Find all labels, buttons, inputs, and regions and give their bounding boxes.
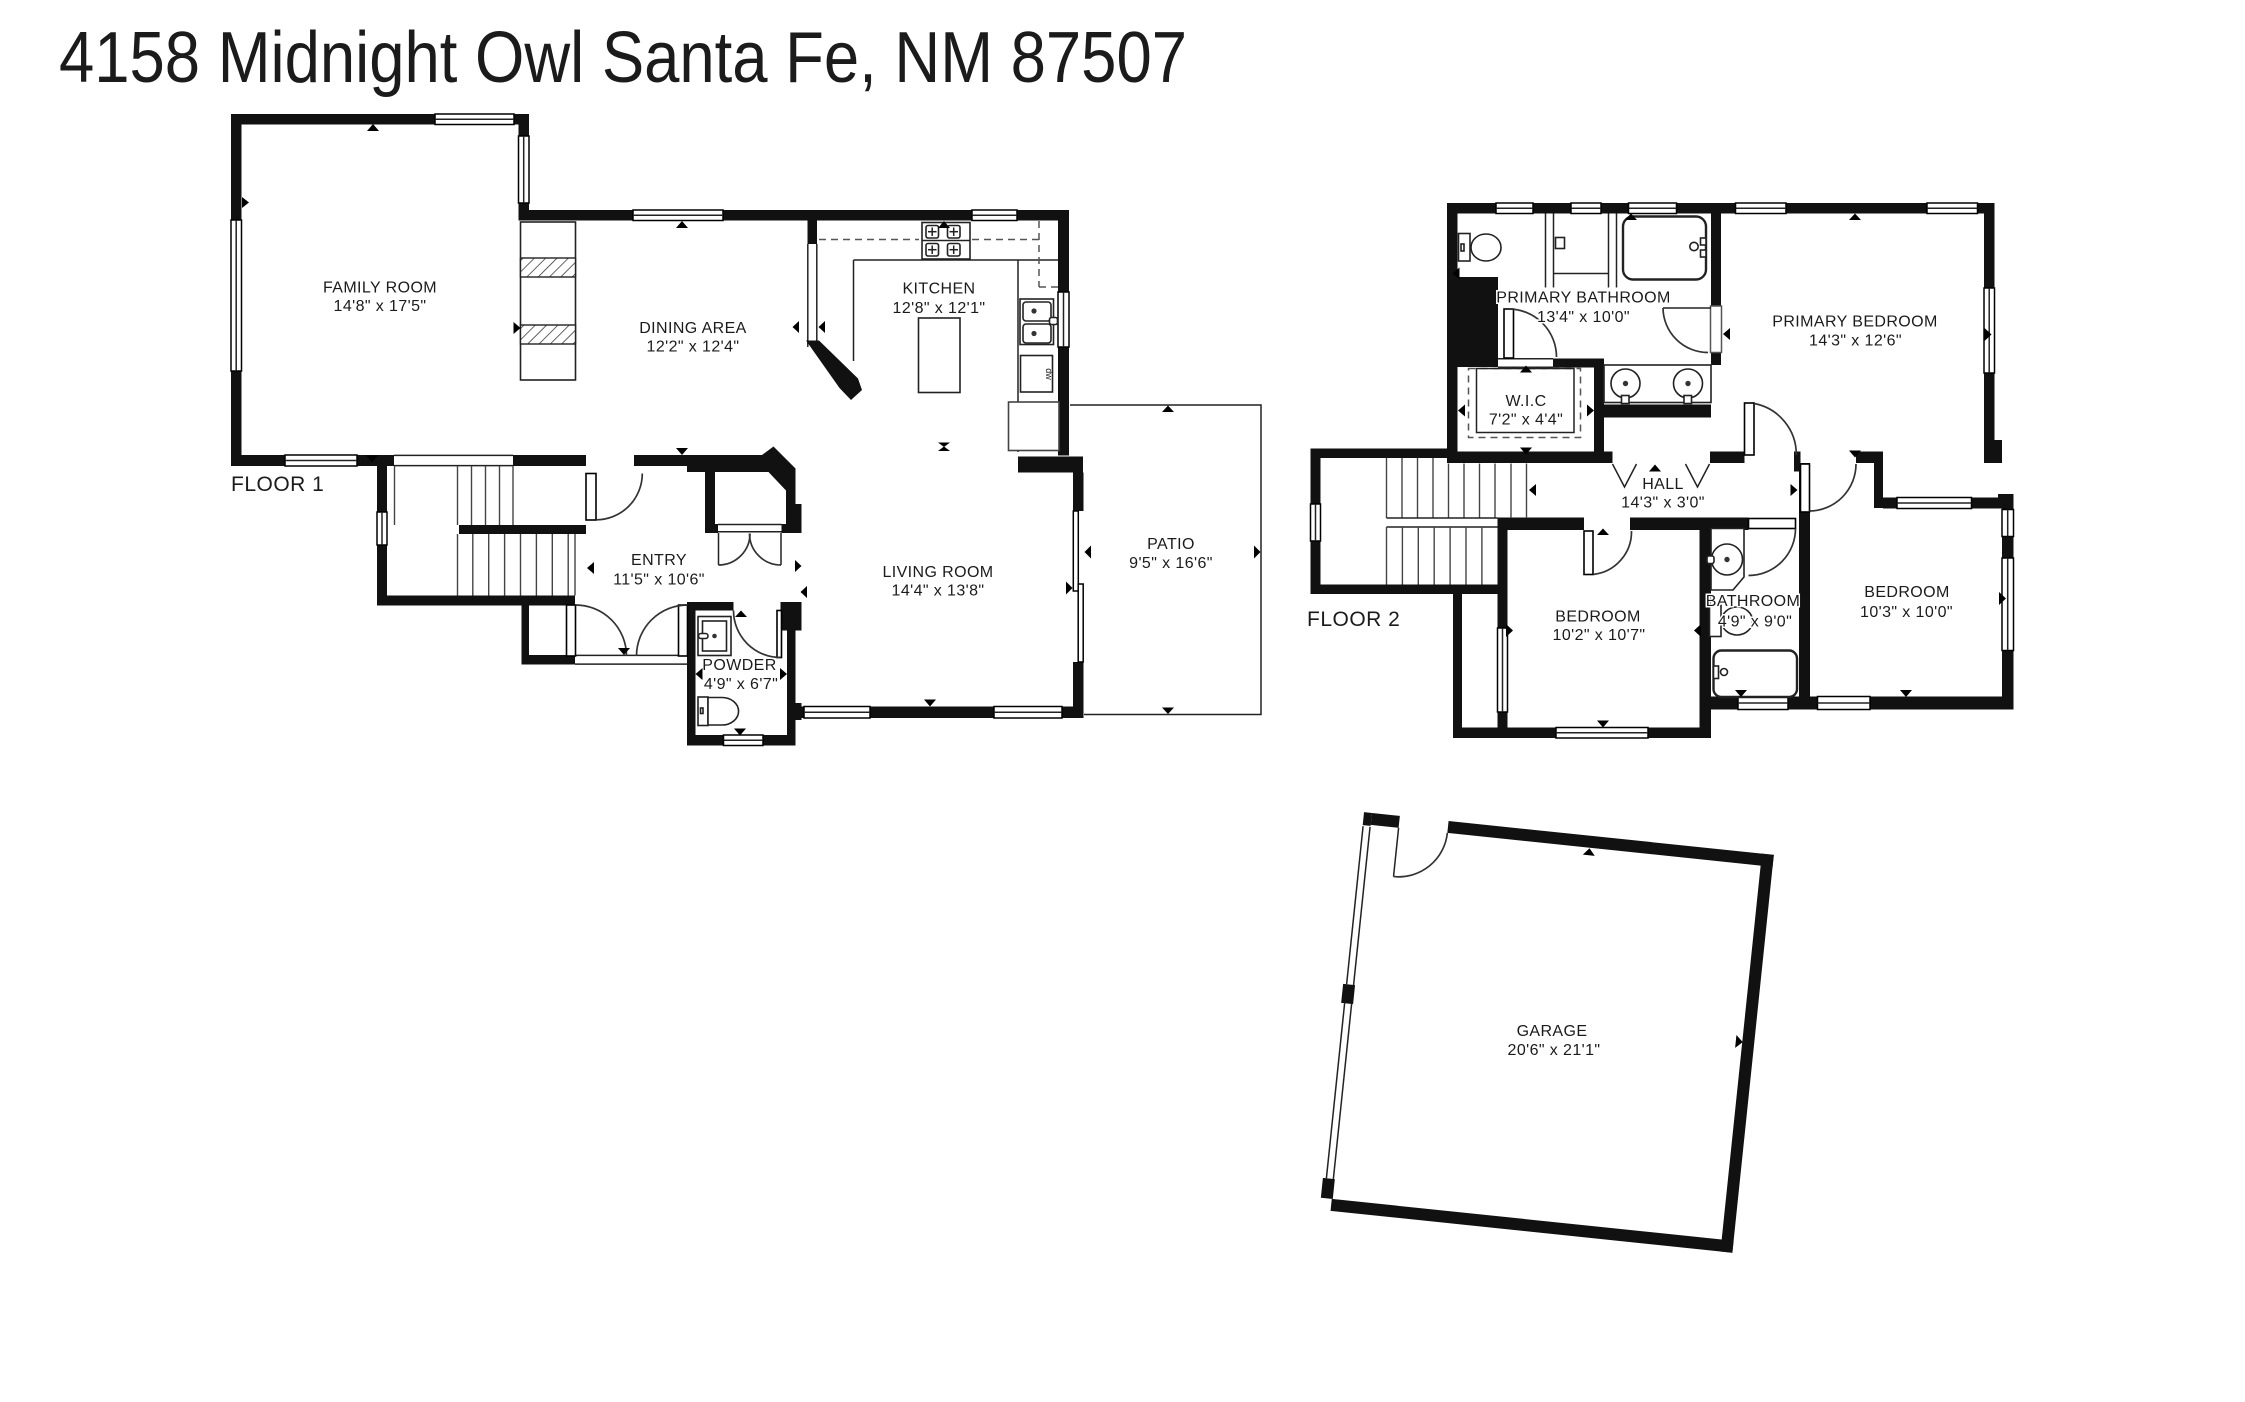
svg-text:14'3" x 12'6": 14'3" x 12'6" bbox=[1809, 333, 1902, 350]
svg-text:10'2" x 10'7": 10'2" x 10'7" bbox=[1553, 627, 1646, 644]
svg-text:7'2" x 4'4": 7'2" x 4'4" bbox=[1489, 412, 1563, 429]
svg-text:14'4" x 13'8": 14'4" x 13'8" bbox=[892, 583, 985, 600]
svg-text:FAMILY ROOM: FAMILY ROOM bbox=[323, 280, 437, 297]
svg-text:14'8" x 17'5": 14'8" x 17'5" bbox=[334, 298, 427, 315]
svg-text:DINING AREA: DINING AREA bbox=[639, 320, 747, 337]
svg-text:POWDER: POWDER bbox=[702, 657, 776, 674]
svg-text:PRIMARY BEDROOM: PRIMARY BEDROOM bbox=[1772, 314, 1937, 331]
svg-text:13'4" x 10'0": 13'4" x 10'0" bbox=[1537, 309, 1630, 326]
svg-text:9'5" x 16'6": 9'5" x 16'6" bbox=[1129, 555, 1213, 572]
svg-text:BEDROOM: BEDROOM bbox=[1864, 584, 1949, 601]
svg-text:W.I.C: W.I.C bbox=[1505, 393, 1546, 410]
svg-text:FLOOR 2: FLOOR 2 bbox=[1307, 608, 1400, 631]
svg-text:4'9" x 9'0": 4'9" x 9'0" bbox=[1718, 614, 1792, 631]
svg-text:KITCHEN: KITCHEN bbox=[902, 281, 975, 298]
svg-text:4158 Midnight Owl Santa Fe, NM: 4158 Midnight Owl Santa Fe, NM 87507 bbox=[59, 18, 1187, 98]
svg-text:HALL: HALL bbox=[1642, 476, 1684, 493]
svg-text:GARAGE: GARAGE bbox=[1517, 1023, 1588, 1040]
svg-text:PATIO: PATIO bbox=[1147, 536, 1195, 553]
svg-text:FLOOR 1: FLOOR 1 bbox=[231, 473, 324, 496]
svg-text:20'6" x 21'1": 20'6" x 21'1" bbox=[1508, 1042, 1601, 1059]
svg-text:10'3" x 10'0": 10'3" x 10'0" bbox=[1860, 604, 1953, 621]
svg-text:BEDROOM: BEDROOM bbox=[1555, 609, 1640, 626]
svg-text:LIVING ROOM: LIVING ROOM bbox=[882, 564, 993, 581]
svg-text:11'5" x 10'6": 11'5" x 10'6" bbox=[613, 572, 705, 589]
svg-text:4'9" x 6'7": 4'9" x 6'7" bbox=[704, 676, 778, 693]
svg-text:dw: dw bbox=[1044, 368, 1054, 380]
svg-text:12'8" x 12'1": 12'8" x 12'1" bbox=[893, 300, 986, 317]
svg-text:ENTRY: ENTRY bbox=[631, 552, 687, 569]
svg-text:BATHROOM: BATHROOM bbox=[1706, 593, 1800, 610]
svg-text:PRIMARY BATHROOM: PRIMARY BATHROOM bbox=[1496, 290, 1670, 307]
svg-text:14'3" x 3'0": 14'3" x 3'0" bbox=[1621, 495, 1705, 512]
svg-text:12'2" x 12'4": 12'2" x 12'4" bbox=[647, 339, 740, 356]
